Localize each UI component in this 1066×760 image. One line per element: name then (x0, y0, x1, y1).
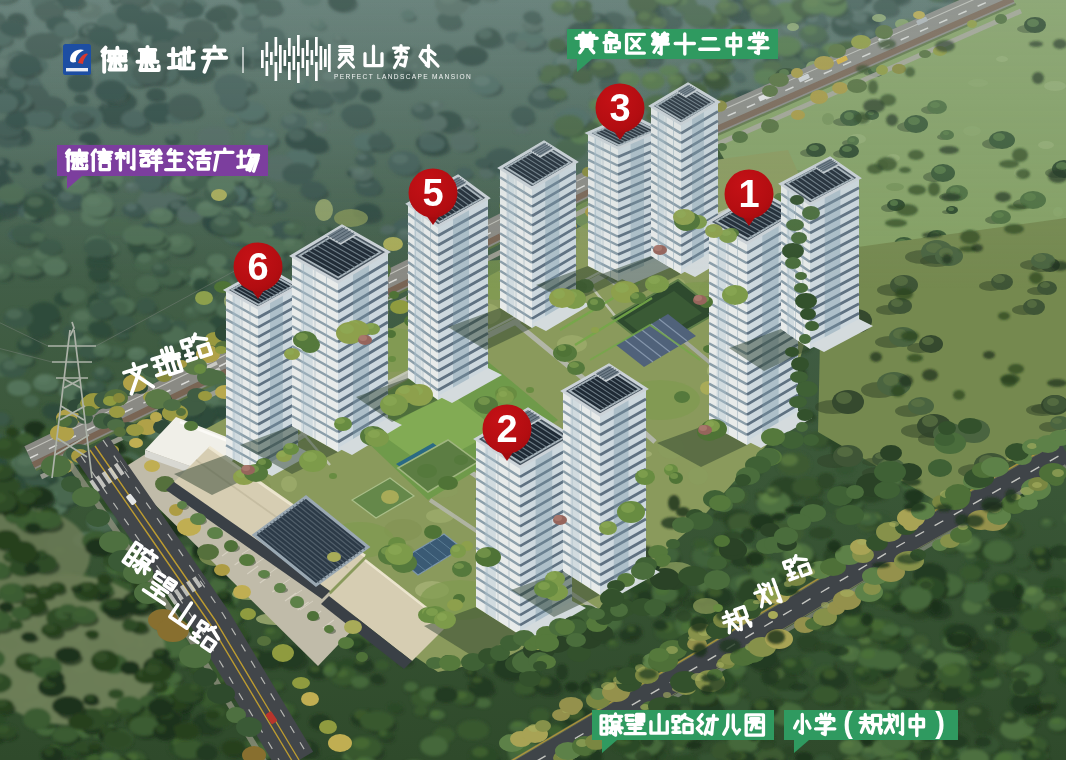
svg-text:5: 5 (422, 172, 443, 214)
svg-text:2: 2 (496, 408, 517, 450)
svg-text:1: 1 (738, 173, 759, 215)
svg-text:): ) (935, 707, 945, 739)
svg-text:3: 3 (609, 87, 630, 129)
svg-text:PERFECT LANDSCAPE MANSION: PERFECT LANDSCAPE MANSION (334, 73, 472, 80)
svg-text:(: ( (843, 707, 853, 739)
svg-text:6: 6 (247, 246, 268, 288)
